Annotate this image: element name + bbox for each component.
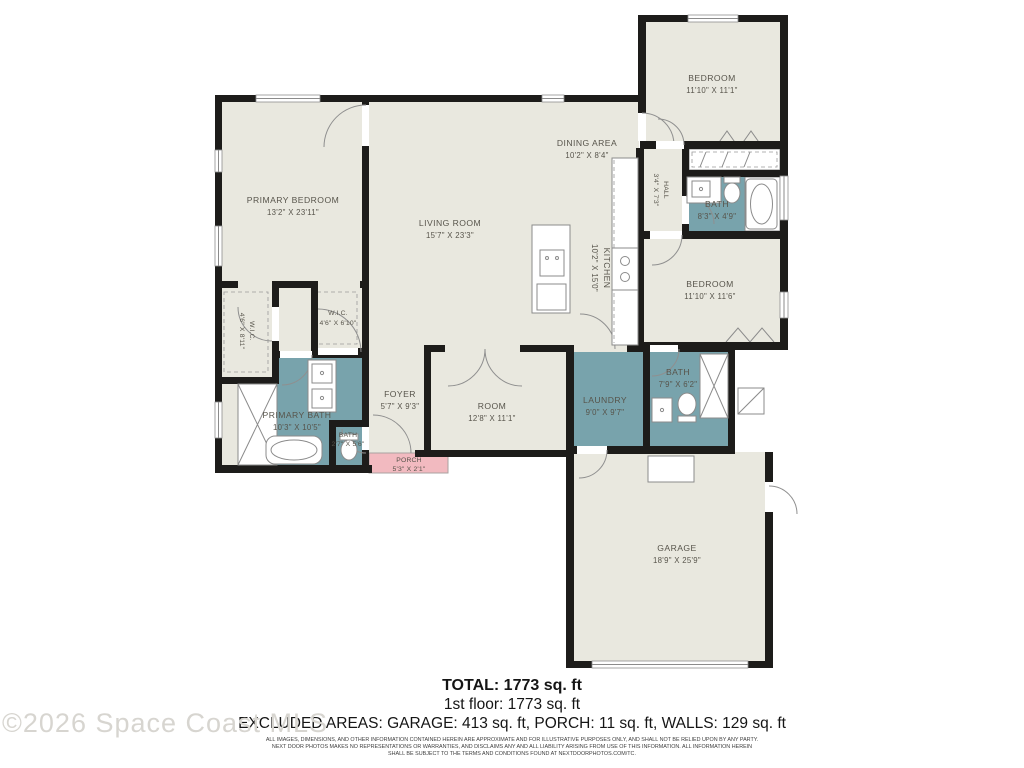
- floor-plan: PRIMARY BEDROOM13'2" X 23'11" LIVING ROO…: [0, 0, 1024, 675]
- svg-text:W.I.C.: W.I.C.: [248, 321, 255, 341]
- svg-text:11'10" X 11'1": 11'10" X 11'1": [686, 86, 737, 95]
- svg-text:HALL: HALL: [662, 181, 669, 199]
- window: [542, 95, 564, 102]
- svg-text:10'2" X 15'0": 10'2" X 15'0": [590, 244, 599, 292]
- window: [780, 176, 788, 220]
- floor-fills: [219, 22, 780, 661]
- svg-text:10'3" X 10'5": 10'3" X 10'5": [273, 423, 321, 432]
- svg-text:PRIMARY BATH: PRIMARY BATH: [263, 410, 332, 420]
- svg-text:15'7" X 23'3": 15'7" X 23'3": [426, 231, 474, 240]
- ac-pad: [738, 388, 764, 414]
- svg-text:4'6" X 8'11": 4'6" X 8'11": [238, 313, 245, 350]
- svg-text:8'3" X 4'9": 8'3" X 4'9": [698, 212, 737, 221]
- svg-text:LAUNDRY: LAUNDRY: [583, 395, 627, 405]
- svg-text:5'7" X 9'3": 5'7" X 9'3": [381, 402, 420, 411]
- svg-text:4'6" X 6'10": 4'6" X 6'10": [319, 320, 356, 327]
- disclaimer-line: NEXT DOOR PHOTOS MAKES NO REPRESENTATION…: [0, 744, 1024, 751]
- sink-vanity: [652, 398, 672, 422]
- svg-text:W.I.C.: W.I.C.: [328, 310, 348, 317]
- water-heater: [648, 456, 694, 482]
- window: [215, 402, 222, 438]
- window: [780, 292, 788, 318]
- svg-text:7'9" X 6'2": 7'9" X 6'2": [659, 380, 698, 389]
- stove: [612, 248, 638, 290]
- kitchen-island: [532, 225, 570, 313]
- svg-text:KITCHEN: KITCHEN: [602, 248, 612, 289]
- svg-text:18'9" X 25'9": 18'9" X 25'9": [653, 556, 701, 565]
- svg-text:11'10" X 11'6": 11'10" X 11'6": [684, 292, 735, 301]
- bathtub: [266, 436, 322, 464]
- window: [688, 15, 738, 22]
- total-area: TOTAL: 1773 sq. ft: [0, 677, 1024, 695]
- svg-text:BEDROOM: BEDROOM: [686, 279, 734, 289]
- bathtub: [746, 179, 777, 229]
- disclaimer-line: SHALL BE SUBJECT TO THE TERMS AND CONDIT…: [0, 751, 1024, 758]
- svg-text:DINING AREA: DINING AREA: [557, 138, 617, 148]
- garage-door: [592, 661, 748, 668]
- svg-text:13'2" X 23'11": 13'2" X 23'11": [267, 208, 319, 217]
- svg-text:3'4" X 7'3": 3'4" X 7'3": [652, 173, 659, 206]
- svg-text:BATH: BATH: [339, 432, 357, 439]
- svg-text:BATH: BATH: [705, 199, 729, 209]
- svg-text:9'0" X 9'7": 9'0" X 9'7": [586, 408, 625, 417]
- svg-text:FOYER: FOYER: [384, 389, 416, 399]
- svg-text:5'3" X 2'1": 5'3" X 2'1": [392, 466, 425, 473]
- svg-text:LIVING ROOM: LIVING ROOM: [419, 218, 481, 228]
- toilet: [678, 393, 696, 422]
- svg-text:2'7" X 5'6": 2'7" X 5'6": [331, 441, 364, 448]
- svg-text:10'2" X 8'4": 10'2" X 8'4": [565, 151, 608, 160]
- svg-text:BEDROOM: BEDROOM: [688, 73, 736, 83]
- svg-text:BATH: BATH: [666, 367, 690, 377]
- shower: [700, 354, 728, 418]
- svg-text:PRIMARY BEDROOM: PRIMARY BEDROOM: [247, 195, 339, 205]
- window: [215, 226, 222, 266]
- mls-watermark: ©2026 Space Coast MLS: [2, 708, 328, 739]
- svg-text:12'8" X 11'1": 12'8" X 11'1": [468, 414, 515, 423]
- svg-text:PORCH: PORCH: [396, 457, 422, 464]
- double-vanity: [308, 360, 336, 412]
- window: [256, 95, 320, 102]
- svg-text:GARAGE: GARAGE: [657, 543, 696, 553]
- window: [215, 150, 222, 172]
- svg-text:ROOM: ROOM: [478, 401, 507, 411]
- disclaimer: ALL IMAGES, DIMENSIONS, AND OTHER INFORM…: [0, 737, 1024, 758]
